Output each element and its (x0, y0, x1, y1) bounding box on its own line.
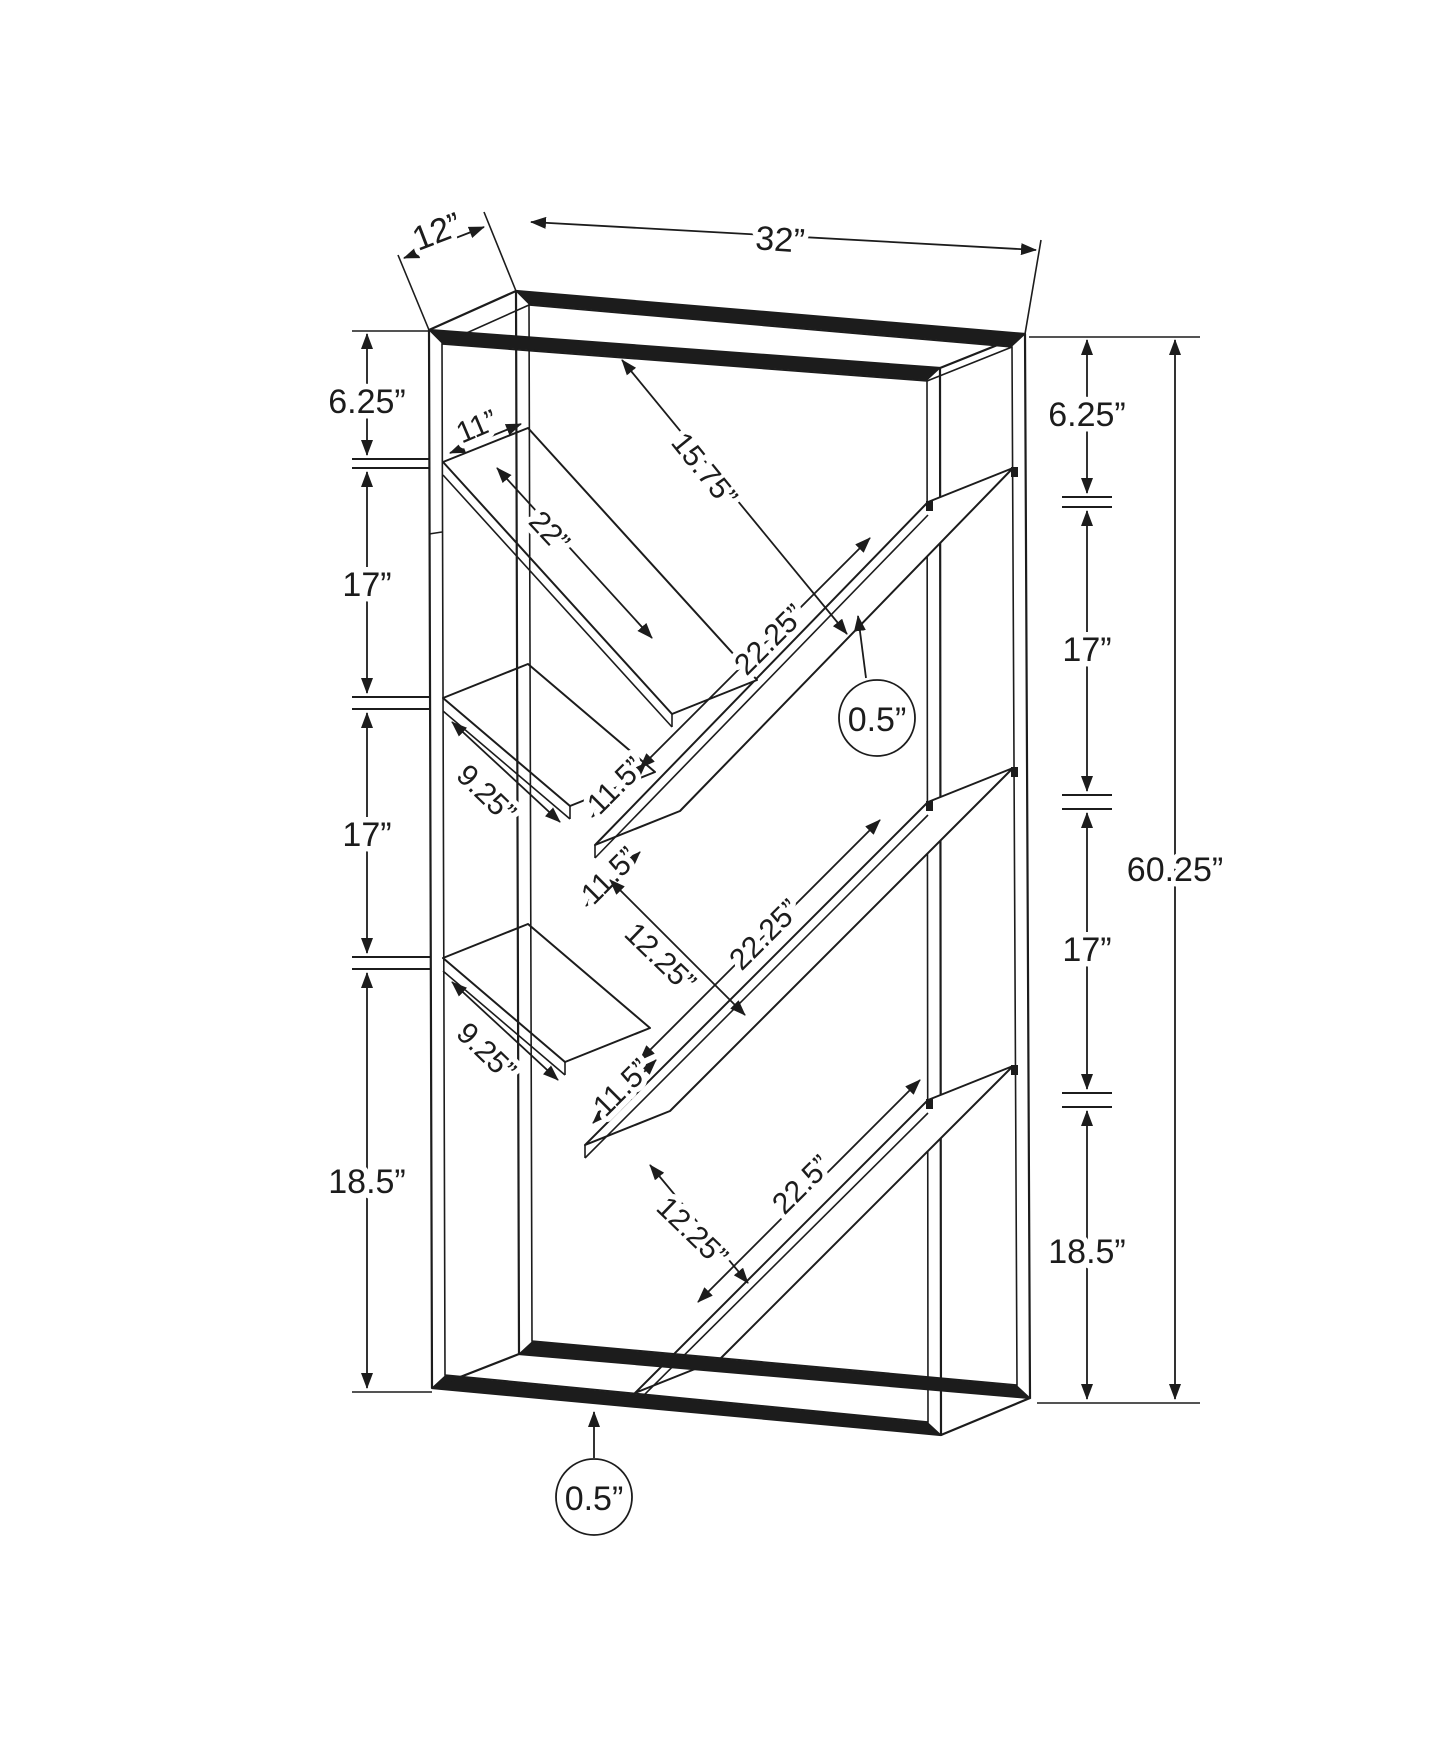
dimension-drawing-page: 12” 32” 6.25” 17” 17” 18.5” (0, 0, 1445, 1754)
mount-dot (926, 1099, 933, 1109)
back-top-rail (429, 330, 940, 380)
left-seg-18-5: 18.5” (328, 1163, 406, 1201)
front-top-rail (516, 291, 1025, 346)
bookcase-dimension-diagram: 12” 32” 6.25” 17” 17” 18.5” (0, 0, 1445, 1754)
dimension-depth-12: 12” (398, 205, 516, 330)
shelf-thickness-callout: 0.5” (839, 616, 915, 756)
width-label: 32” (754, 219, 806, 260)
mount-dot (926, 801, 933, 811)
right-seg-18-5: 18.5” (1048, 1233, 1126, 1271)
frame-thickness-callout: 0.5” (556, 1412, 632, 1535)
overall-height-dimension: 60.25” (1127, 340, 1223, 1399)
left-seg-6-25: 6.25” (328, 383, 406, 421)
right-seg-6-25: 6.25” (1048, 396, 1126, 434)
right-seg-17a: 17” (1062, 631, 1111, 669)
mount-dot (926, 501, 933, 511)
front-frame (516, 291, 1030, 1398)
shelf-thickness-label: 0.5” (848, 701, 907, 739)
mount-dot (1011, 1065, 1018, 1075)
lower-short-plank-label: 9.25” (450, 1016, 522, 1087)
bay-lower-label: 12.25” (650, 1191, 734, 1274)
left-seg-17a: 17” (342, 566, 391, 604)
top-opening-diagonal-label: 15.75” (664, 427, 743, 514)
mount-dot (1011, 767, 1018, 777)
mount-dot (1011, 467, 1018, 477)
overall-height-label: 60.25” (1127, 851, 1223, 889)
tube-joint-tick (429, 532, 442, 534)
frame-thickness-label: 0.5” (565, 1480, 624, 1518)
left-dimension-chain: 6.25” 17” 17” 18.5” (328, 331, 432, 1392)
depth-label: 12” (407, 205, 466, 258)
slot-middle-label: 11.5” (575, 841, 645, 911)
left-seg-17b: 17” (342, 816, 391, 854)
right-seg-17b: 17” (1062, 931, 1111, 969)
